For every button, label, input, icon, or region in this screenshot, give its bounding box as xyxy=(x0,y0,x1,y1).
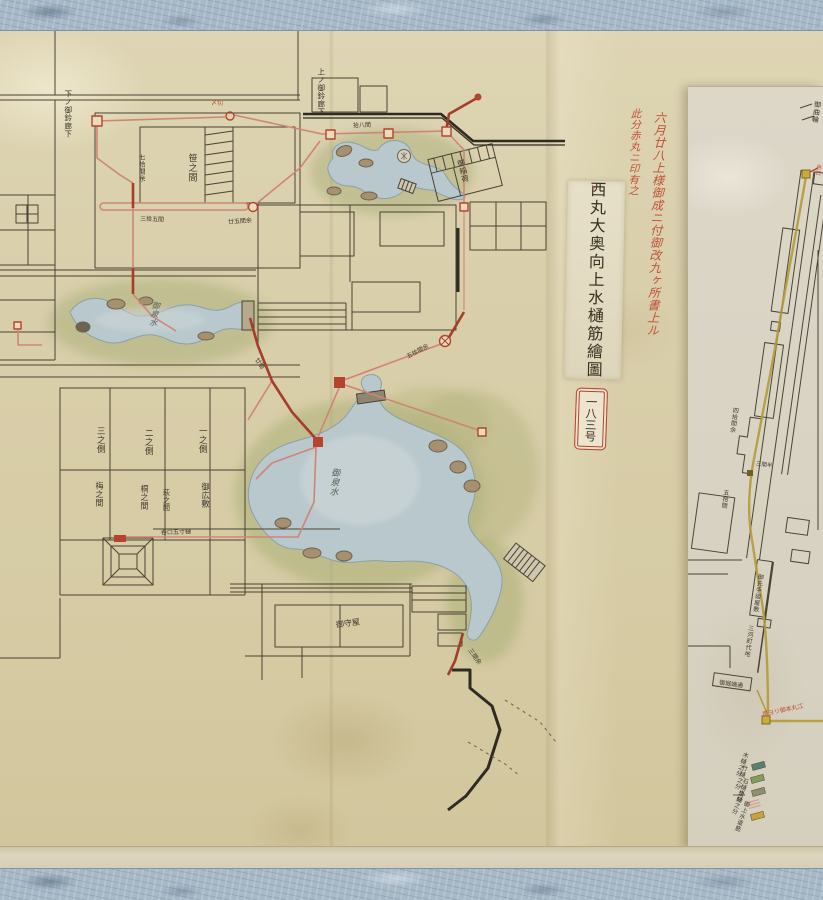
map-title: 西丸大奥向上水樋筋繪圖 xyxy=(580,181,608,379)
scroll-mount-top xyxy=(0,0,823,31)
scroll-silk-strip xyxy=(0,846,823,869)
title-slip: 西丸大奥向上水樋筋繪圖 xyxy=(564,180,625,379)
map-number: 一八三号 xyxy=(582,396,600,443)
right-panel-sheet xyxy=(688,86,823,849)
scroll-map: 西丸大奥向上水樋筋繪圖 一八三号 六月廿八上様御成ニ付御改九ヶ所書上ル此分赤丸ニ… xyxy=(0,0,823,900)
scroll-mount-bottom xyxy=(0,868,823,900)
number-slip: 一八三号 xyxy=(574,387,608,450)
